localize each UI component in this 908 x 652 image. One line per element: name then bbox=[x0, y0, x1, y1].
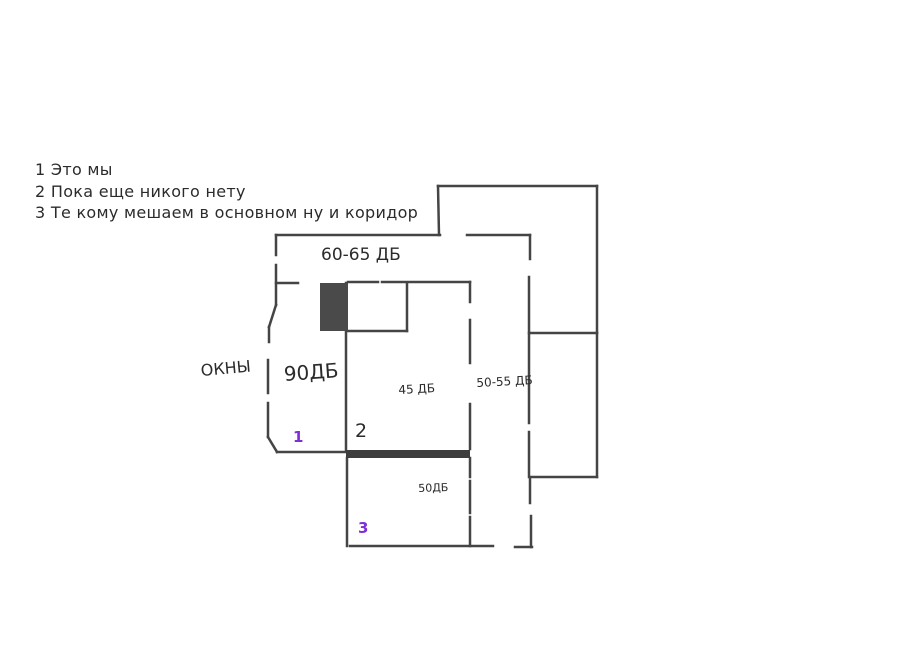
marker-room-2: 2 bbox=[355, 420, 367, 442]
label-60-65-db: 60-65 ДБ bbox=[321, 245, 401, 265]
label-50-db: 50ДБ bbox=[418, 481, 449, 495]
floor-plan-drawing bbox=[0, 0, 908, 652]
wall-segment bbox=[438, 186, 439, 235]
label-50-55-db: 50-55 ДБ bbox=[476, 373, 533, 390]
marker-room-1: 1 bbox=[293, 428, 303, 446]
wall-segment bbox=[269, 305, 276, 327]
door-block bbox=[320, 283, 348, 331]
floor-plan-page: 1 Это мы 2 Пока еще никого нету 3 Те ком… bbox=[0, 0, 908, 652]
label-45-db: 45 ДБ bbox=[398, 381, 435, 397]
wall-segment bbox=[268, 437, 277, 452]
marker-room-3: 3 bbox=[358, 519, 368, 537]
label-90-db: 90ДБ bbox=[283, 358, 339, 386]
thick-wall-bar bbox=[346, 450, 470, 458]
